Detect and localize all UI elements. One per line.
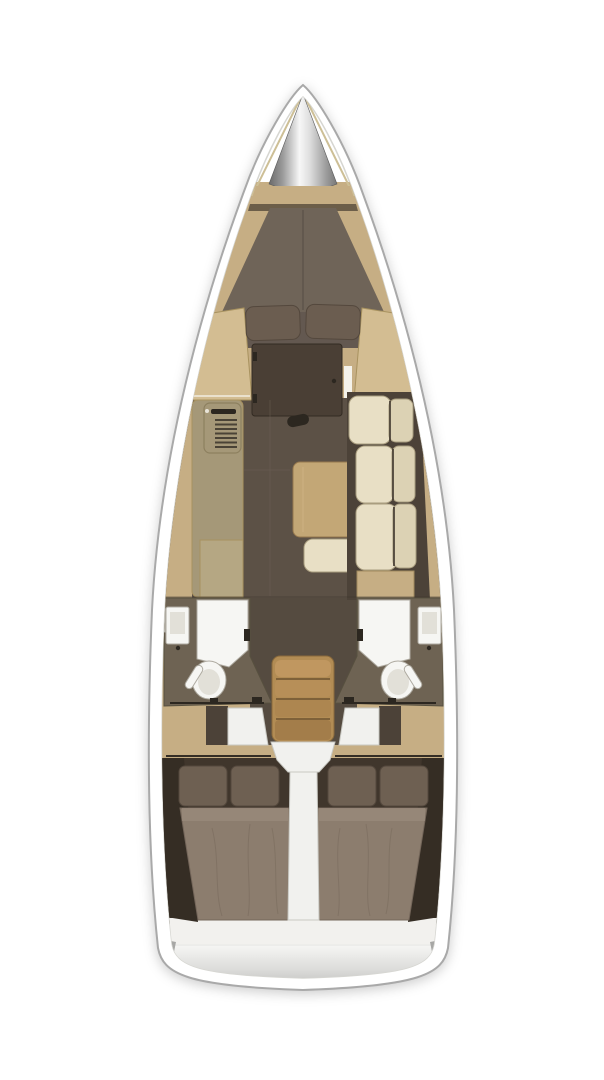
port-pillow-outboard xyxy=(179,766,227,806)
starboard-door-latch xyxy=(357,629,363,641)
center-walkway xyxy=(288,772,319,920)
port-sheet-fold xyxy=(182,808,288,821)
step-2 xyxy=(275,680,331,697)
grill-lines xyxy=(215,420,237,447)
starboard-shower xyxy=(359,600,410,667)
port-step-moulding xyxy=(228,708,268,745)
starboard-tap xyxy=(427,646,431,650)
starboard-duvet xyxy=(317,808,427,920)
bow-shelf xyxy=(250,186,356,204)
port-step-side xyxy=(206,706,228,745)
settee-end-locker xyxy=(357,571,414,600)
step-3 xyxy=(275,700,331,717)
companionway-steps xyxy=(272,656,334,742)
port-tap xyxy=(176,646,180,650)
starboard-pillow-inboard xyxy=(328,766,376,806)
aft-foot-moulding xyxy=(140,918,464,948)
port-shower xyxy=(197,600,248,667)
forward-pillow-starboard xyxy=(305,304,360,340)
door-handle xyxy=(332,379,336,383)
yacht-layout-plan xyxy=(0,0,604,1080)
step-1 xyxy=(275,660,331,677)
settee-backrest-mid xyxy=(392,446,415,502)
settee-backrest-fwd xyxy=(389,399,413,442)
door-hinge-bottom xyxy=(253,394,257,403)
starboard-washbasin-bowl xyxy=(422,612,437,634)
settee-seat-mid xyxy=(356,446,394,503)
aft-cabin-port xyxy=(179,766,290,920)
aft-cabin-starboard xyxy=(317,766,428,920)
forward-cabin-door xyxy=(252,344,342,416)
starboard-step-moulding xyxy=(339,708,379,745)
door-hinge-top xyxy=(253,352,257,361)
port-door-latch xyxy=(244,629,250,641)
layout-drawing xyxy=(0,0,604,1080)
forward-cabin xyxy=(184,208,422,416)
step-4 xyxy=(275,720,331,740)
settee-backrest-aft xyxy=(393,504,416,568)
starboard-step-side xyxy=(379,706,401,745)
forward-pillow-port xyxy=(245,305,300,341)
starboard-pillow-outboard xyxy=(380,766,428,806)
settee-seat-fwd xyxy=(349,396,391,444)
starboard-sheet-fold xyxy=(319,808,425,821)
settee-seat-aft xyxy=(356,504,397,570)
port-pillow-inboard xyxy=(231,766,279,806)
sink-cabinet xyxy=(200,540,243,597)
port-washbasin-bowl xyxy=(170,612,185,634)
port-duvet xyxy=(180,808,290,920)
